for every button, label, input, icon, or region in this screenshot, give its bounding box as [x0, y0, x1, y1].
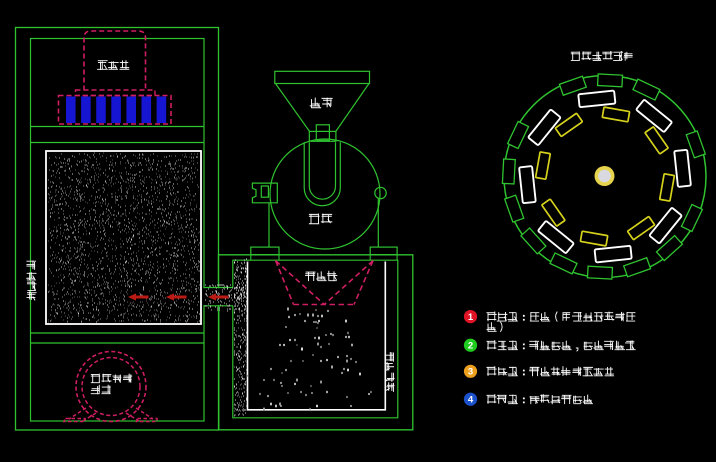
- svg-text:4: 4: [468, 395, 474, 406]
- svg-text:3: 3: [468, 367, 473, 378]
- svg-text:1: 1: [468, 312, 474, 323]
- svg-text:2: 2: [468, 341, 473, 352]
